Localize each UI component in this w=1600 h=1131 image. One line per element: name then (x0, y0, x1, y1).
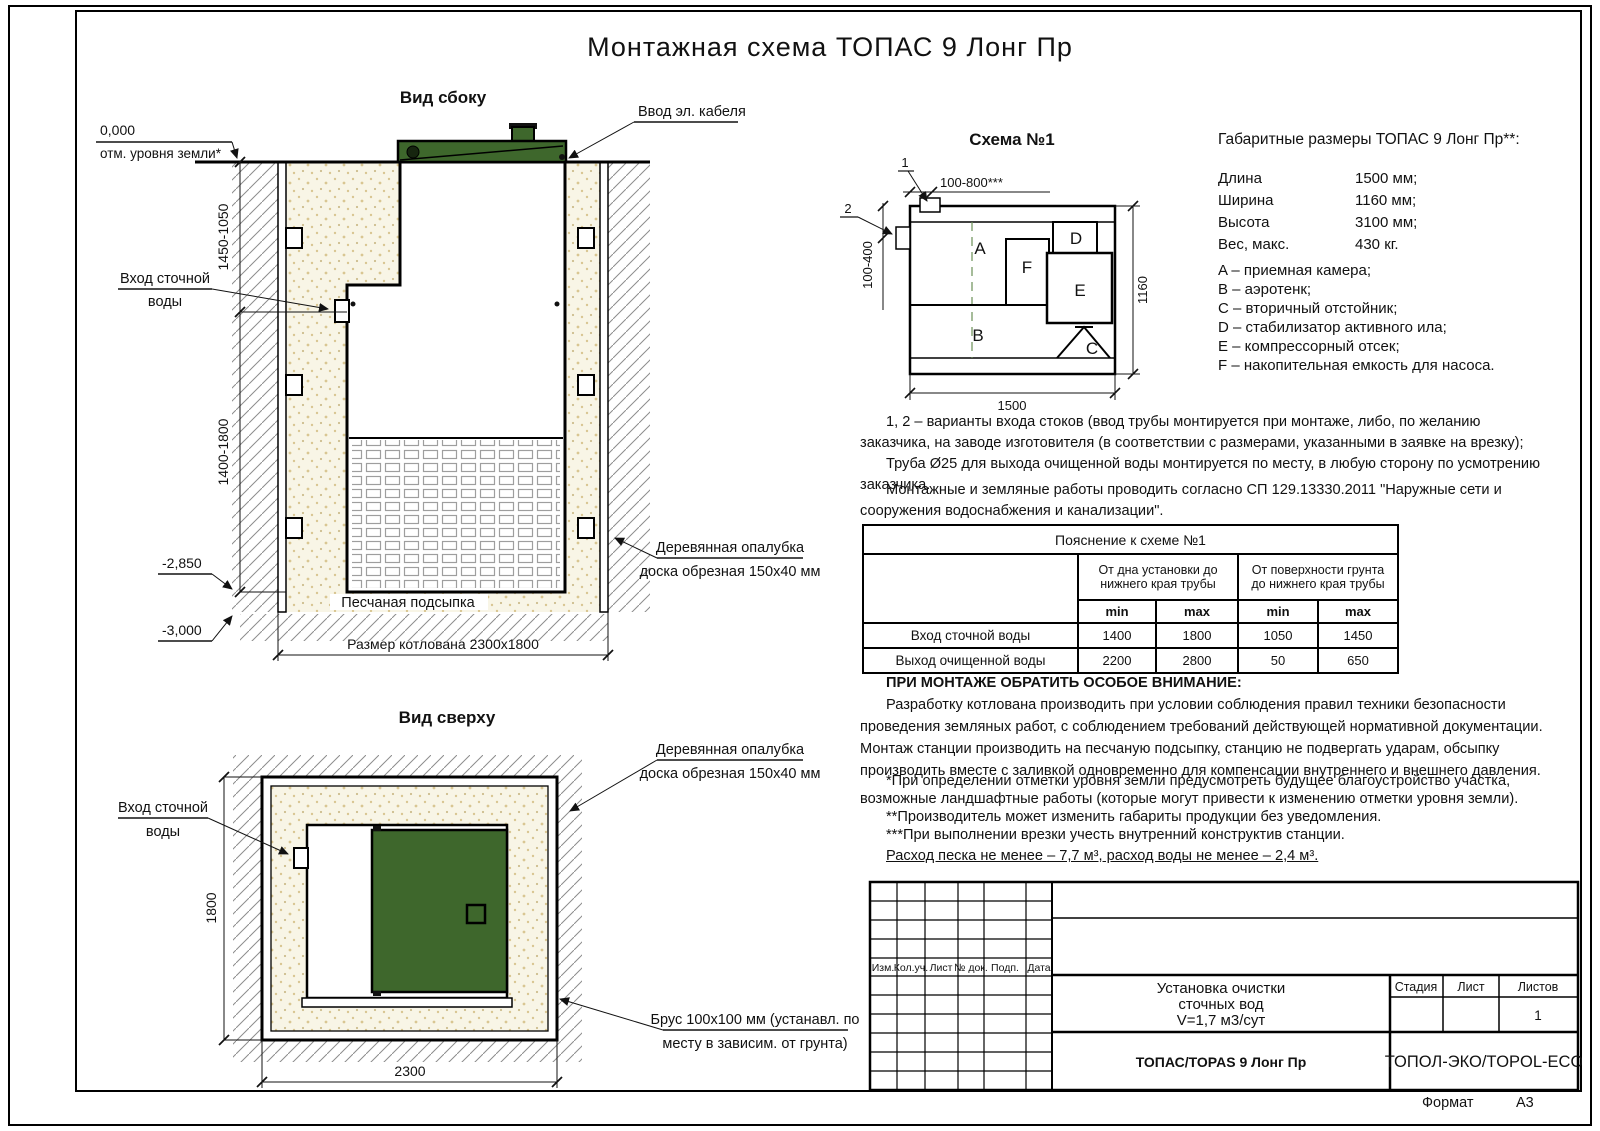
svg-text:доска обрезная 150x40 мм: доска обрезная 150x40 мм (640, 564, 821, 580)
schema-title: Схема №1 (969, 130, 1054, 149)
row-name: Выход очищенной воды (863, 648, 1078, 673)
svg-text:-3,000: -3,000 (162, 622, 202, 638)
svg-text:2: 2 (844, 201, 851, 216)
top-view-title: Вид сверху (399, 708, 496, 727)
table-row: Вход сточной воды 1400 1800 1050 1450 (863, 623, 1398, 648)
cell: 1450 (1318, 623, 1398, 648)
side-view-title: Вид сбоку (400, 88, 487, 107)
level-3000: -3,000 (158, 616, 232, 641)
schema-dim-top: 100-800*** (903, 175, 1050, 197)
model-name: ТОПАС/TOPAS 9 Лонг Пр (1136, 1054, 1307, 1070)
beam-label: Брус 100x100 мм (устанавл. по месту в за… (560, 999, 860, 1052)
page-title: Монтажная схема ТОПАС 9 Лонг Пр (200, 32, 1460, 63)
schema-dim-right: 1160 (1115, 201, 1150, 379)
inlet-stub-top (294, 848, 308, 868)
spec-value: 1160 мм; (1355, 192, 1416, 209)
drawing-sheet: Монтажная схема ТОПАС 9 Лонг Пр Вид сбок… (0, 0, 1600, 1131)
svg-text:Вход сточной: Вход сточной (120, 271, 210, 287)
level-2850: -2,850 (158, 555, 232, 589)
legend-a: A – приемная камера; (1218, 262, 1371, 279)
legend-d: D – стабилизатор активного ила; (1218, 319, 1447, 336)
schema-marker-1: 1 (898, 155, 927, 201)
svg-text:F: F (1022, 258, 1032, 277)
svg-text:100-400: 100-400 (860, 241, 875, 289)
spec-name: Ширина (1218, 192, 1273, 209)
svg-text:100-800***: 100-800*** (940, 175, 1003, 190)
svg-text:Кол.уч.: Кол.уч. (894, 962, 928, 974)
explanation-table: Пояснение к схеме №1 От дна установки до… (862, 524, 1399, 674)
svg-text:1160: 1160 (1135, 276, 1150, 304)
star-note-2: **Производитель может изменить габариты … (860, 808, 1560, 826)
schema-dim-bottom: 1500 (905, 374, 1120, 413)
svg-text:месту в зависим. от грунта): месту в зависим. от грунта) (662, 1036, 847, 1052)
svg-text:Стадия: Стадия (1395, 980, 1438, 994)
spec-name: Длина (1218, 170, 1262, 187)
svg-text:C: C (1086, 339, 1098, 358)
consumption-note: Расход песка не менее – 7,7 м³, расход в… (860, 846, 1560, 867)
svg-text:Лист: Лист (930, 962, 953, 974)
spec-value: 430 кг. (1355, 236, 1399, 253)
dim-lower: 1400-1800 (215, 418, 231, 485)
top-view-drawing: Вид сверху Вход сточной воды (80, 690, 870, 1090)
star-note-3: ***При выполнении врезки учесть внутренн… (860, 826, 1560, 844)
col-max: max (1318, 600, 1398, 623)
legend-f: F – накопительная емкость для насоса. (1218, 357, 1495, 374)
attention-body: Разработку котлована производить при усл… (860, 694, 1555, 782)
legend-c: C – вторичный отстойник; (1218, 300, 1397, 317)
sheets-count: 1 (1534, 1008, 1542, 1023)
cell: 50 (1238, 648, 1318, 673)
schema-drawing: Схема №1 A B C D E F 1 (820, 115, 1180, 415)
side-view-drawing: Вид сбоку (80, 85, 860, 680)
notes-sp: Монтажные и земляные работы проводить со… (860, 480, 1552, 522)
station-grid-fill (352, 440, 560, 588)
svg-text:E: E (1074, 281, 1085, 300)
col-max: max (1156, 600, 1238, 623)
note-para: Монтажные и земляные работы проводить со… (860, 480, 1552, 522)
stage-headers: Стадия Лист Листов (1395, 980, 1559, 994)
spec-name: Вес, макс. (1218, 236, 1289, 253)
svg-text:Изм.: Изм. (872, 962, 895, 974)
svg-text:доска обрезная 150x40 мм: доска обрезная 150x40 мм (640, 766, 821, 782)
svg-text:Ввод эл. кабеля: Ввод эл. кабеля (638, 104, 746, 120)
svg-text:Дата: Дата (1027, 962, 1050, 974)
revision-headers: Изм. Кол.уч. Лист № док. Подп. Дата (872, 962, 1051, 974)
cell: 1400 (1078, 623, 1156, 648)
svg-text:B: B (972, 326, 983, 345)
station-lid (398, 123, 566, 162)
svg-text:V=1,7 м3/сут: V=1,7 м3/сут (1177, 1012, 1266, 1029)
svg-text:1500: 1500 (998, 398, 1027, 413)
svg-text:Вход сточной: Вход сточной (118, 800, 208, 816)
svg-text:-2,850: -2,850 (162, 555, 202, 571)
cell: 650 (1318, 648, 1398, 673)
project-name: Установка очистки сточных вод V=1,7 м3/с… (1157, 980, 1286, 1029)
table-corner-cell (863, 554, 1078, 623)
svg-text:Листов: Листов (1518, 980, 1559, 994)
svg-text:Песчаная подсыпка: Песчаная подсыпка (341, 595, 475, 611)
dim-upper: 1450-1050 (215, 203, 231, 270)
cell: 1050 (1238, 623, 1318, 648)
table-group-1: От дна установки до нижнего края трубы (1078, 554, 1238, 600)
svg-text:Размер котлована 2300x1800: Размер котлована 2300x1800 (347, 636, 539, 652)
col-min: min (1238, 600, 1318, 623)
beam-bar (302, 998, 512, 1007)
cell: 2800 (1156, 648, 1238, 673)
svg-text:D: D (1070, 229, 1082, 248)
star-note-1: *При определении отметки уровня земли пр… (860, 772, 1560, 808)
zero-level-mark: 0,000 отм. уровня земли* (96, 122, 237, 161)
schema-dim-left: 100-400 (860, 201, 888, 310)
spec-value: 1500 мм; (1355, 170, 1417, 187)
svg-text:1800: 1800 (203, 892, 219, 923)
cell: 2200 (1078, 648, 1156, 673)
sand-caption: Песчаная подсыпка (330, 594, 488, 611)
svg-text:Лист: Лист (1457, 980, 1484, 994)
specs-title: Габаритные размеры ТОПАС 9 Лонг Пр**: (1218, 131, 1520, 149)
company-name: ТОПОЛ-ЭКО/TOPOL-ECO (1385, 1053, 1582, 1071)
svg-text:1: 1 (901, 155, 908, 170)
svg-text:2300: 2300 (394, 1063, 425, 1079)
row-name: Вход сточной воды (863, 623, 1078, 648)
svg-text:сточных вод: сточных вод (1178, 996, 1264, 1013)
cable-label: Ввод эл. кабеля (569, 104, 746, 158)
format-label: Формат (1422, 1095, 1474, 1111)
svg-text:№ док.: № док. (954, 962, 988, 974)
svg-text:Деревянная опалубка: Деревянная опалубка (656, 742, 805, 758)
title-block: Изм. Кол.уч. Лист № док. Подп. Дата Уста… (868, 880, 1582, 1094)
legend-e: E – компрессорный отсек; (1218, 338, 1400, 355)
svg-text:воды: воды (148, 294, 182, 310)
svg-text:0,000: 0,000 (100, 122, 135, 138)
formwork-label-top: Деревянная опалубка доска обрезная 150x4… (570, 742, 820, 811)
svg-text:A: A (974, 239, 986, 258)
svg-text:воды: воды (146, 824, 180, 840)
attention-title: ПРИ МОНТАЖЕ ОБРАТИТЬ ОСОБОЕ ВНИМАНИЕ: (860, 672, 1555, 694)
note-para: 1, 2 – варианты входа стоков (ввод трубы… (860, 412, 1552, 454)
table-row: Выход очищенной воды 2200 2800 50 650 (863, 648, 1398, 673)
cell: 1800 (1156, 623, 1238, 648)
table-group-2: От поверхности грунта до нижнего края тр… (1238, 554, 1398, 600)
schema-marker-2: 2 (840, 201, 892, 234)
consumption-text: Расход песка не менее – 7,7 м³, расход в… (860, 846, 1560, 867)
svg-text:Деревянная опалубка: Деревянная опалубка (656, 540, 805, 556)
format-value: А3 (1516, 1095, 1534, 1111)
svg-text:отм. уровня земли*: отм. уровня земли* (100, 146, 222, 161)
svg-text:Брус 100x100 мм (устанавл. по: Брус 100x100 мм (устанавл. по (651, 1012, 860, 1028)
star-notes: *При определении отметки уровня земли пр… (860, 772, 1560, 844)
svg-text:Установка очистки: Установка очистки (1157, 980, 1286, 997)
station-lid-top (372, 826, 507, 996)
spec-value: 3100 мм; (1355, 214, 1417, 231)
spec-name: Высота (1218, 214, 1270, 231)
attention-block: ПРИ МОНТАЖЕ ОБРАТИТЬ ОСОБОЕ ВНИМАНИЕ: Ра… (860, 672, 1555, 782)
col-min: min (1078, 600, 1156, 623)
legend-b: B – аэротенк; (1218, 281, 1311, 298)
svg-text:Подп.: Подп. (991, 962, 1019, 974)
table-title: Пояснение к схеме №1 (863, 525, 1398, 554)
